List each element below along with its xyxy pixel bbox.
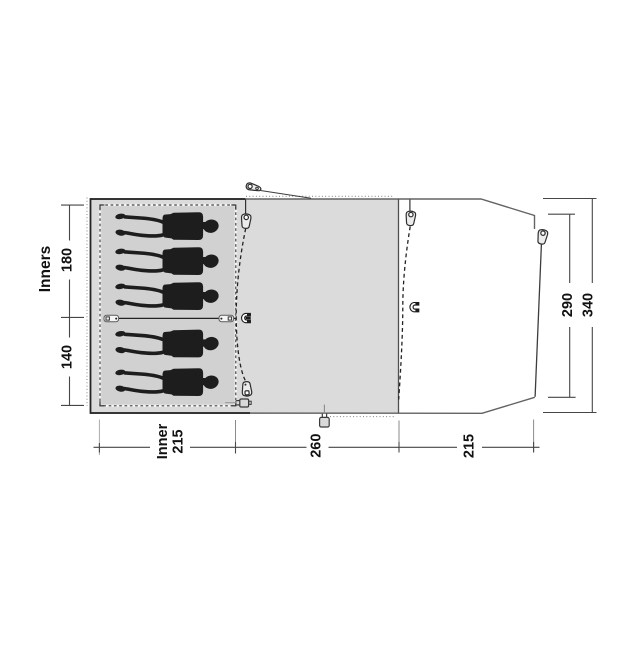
svg-text:215: 215 — [461, 434, 477, 458]
svg-text:340: 340 — [581, 293, 597, 317]
svg-text:180: 180 — [60, 248, 76, 272]
svg-text:260: 260 — [308, 434, 324, 458]
svg-text:215: 215 — [170, 429, 186, 453]
svg-text:Inners: Inners — [37, 246, 54, 293]
svg-text:Inner: Inner — [155, 423, 171, 459]
svg-text:290: 290 — [560, 293, 576, 317]
svg-text:140: 140 — [60, 345, 76, 369]
